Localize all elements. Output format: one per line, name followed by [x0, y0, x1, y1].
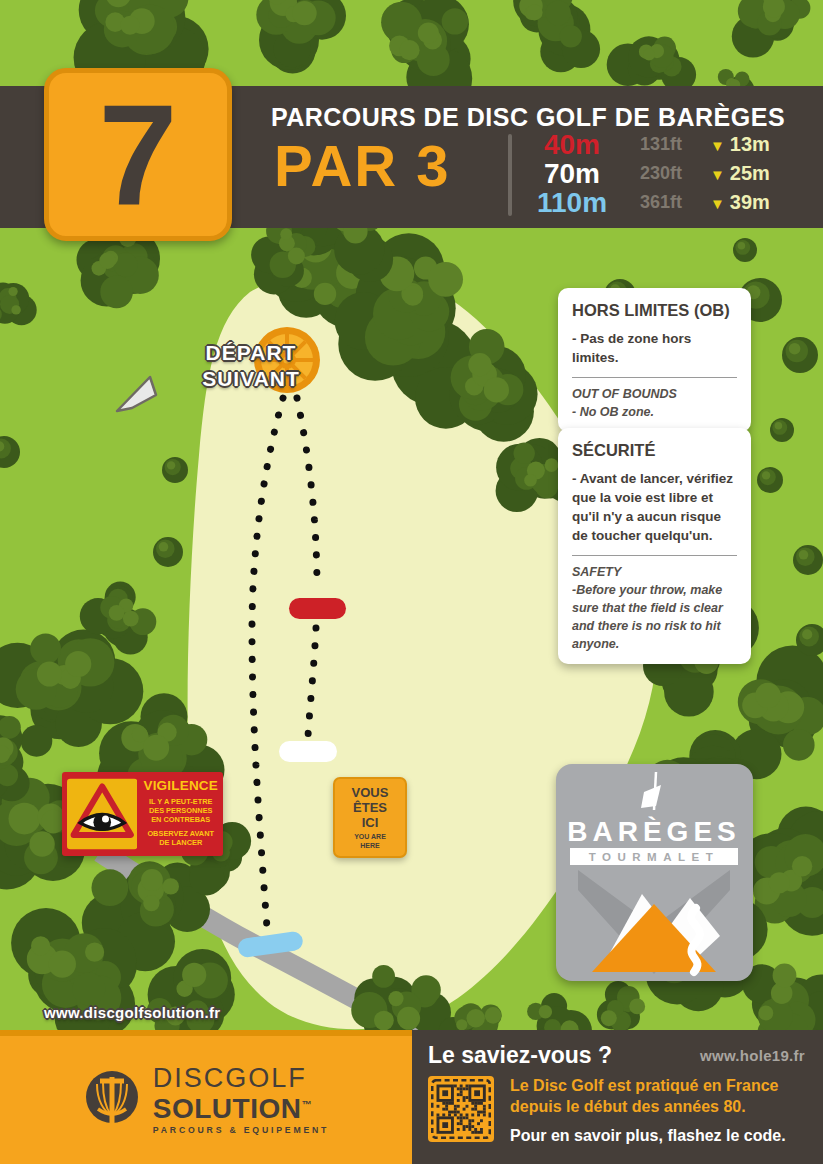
trademark: ™	[301, 1099, 312, 1110]
ob-title: HORS LIMITES (OB)	[572, 301, 737, 320]
course-title: PARCOURS DE DISC GOLF DE BARÈGES	[248, 103, 808, 132]
drop-arrow-icon: ▼	[710, 166, 725, 183]
tee-distance-m: 70m	[524, 159, 620, 188]
ob-text-fr: - Pas de zone hors limites.	[572, 329, 737, 367]
you-are-here-line3: ICI	[337, 815, 403, 830]
tee-distance-ft: 131ft	[620, 134, 702, 155]
safety-text-fr: - Avant de lancer, vérifiez que la voie …	[572, 469, 737, 545]
tee-drop-value: 25m	[730, 162, 770, 184]
par-label: PAR 3	[274, 132, 451, 199]
ob-title-en: OUT OF BOUNDS	[572, 386, 737, 403]
vigilance-title: VIGILENCE	[143, 778, 218, 793]
brand-solution: SOLUTION	[153, 1093, 302, 1124]
hole-number: 7	[99, 84, 178, 226]
discgolfsolution-link[interactable]: www.discgolfsolution.fr	[44, 1004, 220, 1021]
tee-drop: ▼13m	[702, 133, 790, 156]
you-are-here-sub2: HERE	[337, 842, 403, 851]
tee-drop-value: 39m	[730, 191, 770, 213]
fact-line1: Le Disc Golf est pratiqué en France	[510, 1075, 807, 1096]
tee-70m-marker	[279, 741, 337, 762]
safety-box: SÉCURITÉ - Avant de lancer, vérifiez que…	[558, 428, 751, 664]
drop-arrow-icon: ▼	[710, 195, 725, 212]
tee-distance-m: 110m	[524, 188, 620, 217]
footer-brand-panel: DISCGOLF SOLUTION™ PARCOURS & EQUIPEMENT	[0, 1030, 412, 1164]
mountain-emblem	[578, 870, 730, 974]
tee-40m-marker	[289, 598, 346, 619]
out-of-bounds-box: HORS LIMITES (OB) - Pas de zone hors lim…	[558, 288, 751, 432]
next-tee-arrow-icon	[114, 370, 160, 414]
vigilance-warning-box: VIGILENCE IL Y A PEUT-ETRE DES PERSONNES…	[62, 772, 223, 856]
bareges-logo-graphic: BARÈGES TOURMALET	[556, 764, 753, 981]
header-divider	[508, 134, 512, 216]
vigilance-warning-text: IL Y A PEUT-ETRE DES PERSONNES EN CONTRE…	[143, 798, 218, 824]
bareges-name: BARÈGES	[567, 816, 740, 847]
observatory-silhouette	[641, 785, 661, 808]
bareges-tourmalet-logo: BARÈGES TOURMALET	[556, 764, 753, 981]
hole-number-badge: 7	[44, 68, 232, 241]
tee-drop: ▼25m	[702, 162, 790, 185]
bareges-subtitle: TOURMALET	[589, 851, 719, 863]
divider	[572, 377, 737, 378]
divider	[572, 555, 737, 556]
next-tee-label: DÉPART SUIVANT	[112, 340, 352, 392]
tee-distance-m: 40m	[524, 130, 620, 159]
tee-drop: ▼39m	[702, 191, 790, 214]
safety-title: SÉCURITÉ	[572, 441, 737, 460]
safety-title-en: SAFETY	[572, 564, 737, 581]
you-are-here-marker: VOUS ÊTES ICI YOU ARE HERE	[333, 777, 407, 858]
footer: DISCGOLF SOLUTION™ PARCOURS & EQUIPEMENT…	[0, 1030, 823, 1164]
hole19-link[interactable]: www.hole19.fr	[700, 1047, 805, 1064]
you-are-here-line1: VOUS	[337, 785, 403, 800]
next-tee-line2: SUIVANT	[150, 366, 352, 392]
safety-text-en: -Before your throw, make sure that the f…	[572, 581, 737, 653]
you-are-here-line2: ÊTES	[337, 800, 403, 815]
discgolf-basket-icon	[83, 1069, 141, 1131]
tee-distance-ft: 361ft	[620, 192, 702, 213]
drop-arrow-icon: ▼	[710, 137, 725, 154]
eye-warning-icon	[67, 777, 137, 851]
tee-drop-value: 13m	[730, 133, 770, 155]
fact-line2: depuis le début des années 80.	[510, 1096, 807, 1117]
you-are-here-sub1: YOU ARE	[337, 833, 403, 842]
next-tee-line1: DÉPART	[150, 340, 352, 366]
disc-golf-hole-sign: PARCOURS DE DISC GOLF DE BARÈGES PAR 3 4…	[0, 0, 823, 1164]
tee-distance-ft: 230ft	[620, 163, 702, 184]
brand-tagline: PARCOURS & EQUIPEMENT	[153, 1125, 329, 1135]
vigilance-instruction-text: OBSERVEZ AVANT DE LANCER	[143, 830, 218, 848]
tee-distance-table: 40m 131ft ▼13m 70m 230ft ▼25m 110m 361ft…	[524, 130, 790, 217]
fact-cta: Pour en savoir plus, flashez le code.	[510, 1127, 807, 1145]
brand-discgolf: DISCGOLF	[153, 1065, 329, 1091]
qr-code	[428, 1076, 494, 1142]
footer-info-panel: Le saviez-vous ? www.hole19.fr Le Disc G…	[412, 1030, 823, 1164]
ob-text-en: - No OB zone.	[572, 403, 737, 421]
